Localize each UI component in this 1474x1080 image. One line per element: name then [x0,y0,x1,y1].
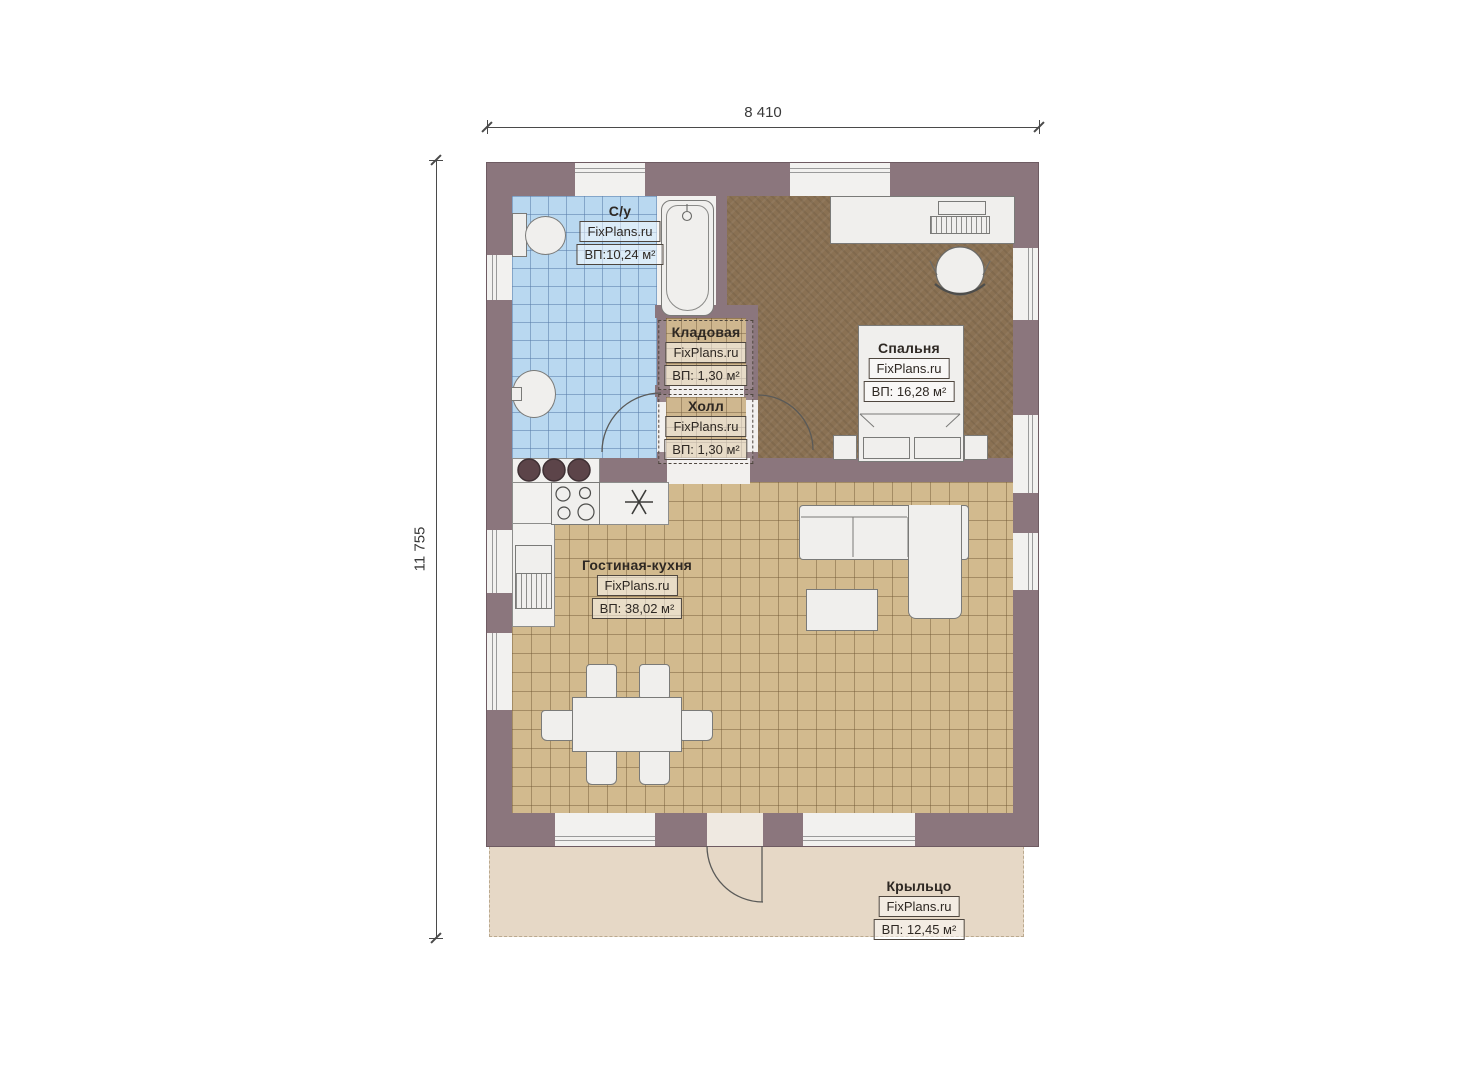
fridge-top [515,545,552,575]
nightstand [833,435,857,460]
porch-label: Крыльцо FixPlans.ru ВП: 12,45 м² [874,878,965,940]
bed-pillow [914,437,961,459]
bedroom-label: Спальня FixPlans.ru ВП: 16,28 м² [864,340,955,402]
sink-tap [511,387,522,401]
room-area: ВП: 1,30 м² [664,439,747,460]
room-area: ВП: 1,30 м² [664,365,747,386]
storage-label: Кладовая FixPlans.ru ВП: 1,30 м² [658,320,753,390]
brand-watermark: FixPlans.ru [665,342,746,363]
bathtub-inner [666,205,709,311]
hall-label: Холл FixPlans.ru ВП: 1,30 м² [658,394,753,464]
floor-plan-canvas: 8 410 11 755 [0,0,1474,1080]
stove [551,482,600,525]
bathroom-label: С/у FixPlans.ru ВП:10,24 м² [576,203,663,265]
coffee-table [806,589,878,631]
room-area: ВП: 12,45 м² [874,919,965,940]
room-area: ВП:10,24 м² [576,244,663,265]
brand-watermark: FixPlans.ru [596,575,677,596]
desk-device [938,201,986,215]
living-room-label: Гостиная-кухня FixPlans.ru ВП: 38,02 м² [582,557,692,619]
dimension-line-height [436,160,437,938]
fridge-vent [515,573,552,609]
bathtub [661,200,714,316]
room-name: Холл [688,398,724,414]
dining-chair [586,747,617,785]
room-name: Крыльцо [886,878,951,894]
room-name: Кладовая [672,324,741,340]
brand-watermark: FixPlans.ru [665,416,746,437]
nightstand [964,435,988,460]
brand-watermark: FixPlans.ru [579,221,660,242]
sofa-chaise [908,505,962,619]
interior-wall [716,196,727,318]
window [487,530,512,593]
room-name: С/у [609,203,631,219]
window [1013,248,1038,320]
desk-keyboard [930,216,990,234]
dining-chair [639,747,670,785]
toilet-bowl [525,216,566,255]
room-name: Гостиная-кухня [582,557,692,573]
dimension-height-label: 11 755 [412,527,429,572]
entrance-door-opening [707,813,763,846]
bed-pillow [863,437,910,459]
window [1013,415,1038,493]
window [487,633,512,710]
dimension-width-label: 8 410 [744,104,782,121]
window [790,163,890,196]
dining-table [572,697,682,752]
brand-watermark: FixPlans.ru [878,896,959,917]
room-area: ВП: 38,02 м² [592,598,683,619]
window [575,163,645,196]
room-name: Спальня [878,340,940,356]
dining-chair [677,710,713,741]
window [487,255,512,300]
kitchen-bar-counter [512,458,600,484]
window [555,813,655,846]
window [803,813,915,846]
brand-watermark: FixPlans.ru [868,358,949,379]
room-area: ВП: 16,28 м² [864,381,955,402]
window [1013,533,1038,590]
dimension-line-width [487,127,1040,128]
